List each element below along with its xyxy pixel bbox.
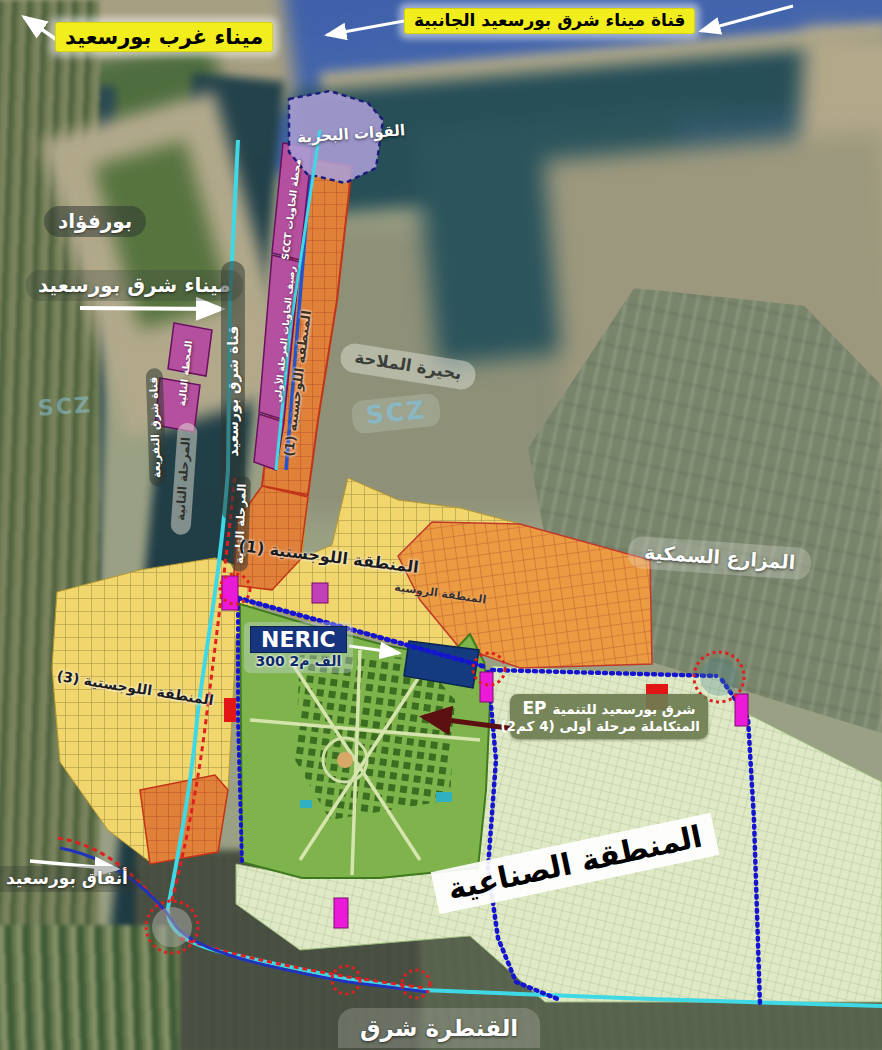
label-side-canal: قناة ميناء شرق بورسعيد الجانبية: [404, 8, 695, 34]
ep-dev-code: EP: [522, 699, 546, 719]
ep-dev-line2: المتكاملة مرحلة أولى (4 كم2): [518, 719, 700, 735]
label-phase2-east: المرحلة الثانية: [231, 475, 252, 572]
neric-area-text: 300 الف م2: [250, 653, 347, 669]
ep-dev-line1: شرق بورسعيد للتنمية: [553, 702, 696, 718]
map-canvas: ميناء غرب بورسعيد قناة ميناء شرق بورسعيد…: [0, 0, 882, 1050]
station-node-3: [334, 898, 348, 928]
station-node-4: [735, 694, 748, 726]
arrow-side-canal-b: [701, 6, 793, 31]
ep-dev-callout: EP شرق بورسعيد للتنمية المتكاملة مرحلة أ…: [510, 694, 708, 739]
label-port-east: ميناء شرق بورسعيد: [26, 270, 243, 301]
neric-title-box: NERIC: [250, 626, 347, 653]
ep-pond-a: [436, 792, 452, 802]
red-plot-2: [224, 698, 236, 722]
station-node-2: [480, 672, 493, 702]
interchange-6: [402, 970, 430, 998]
station-node-1: [222, 576, 238, 610]
arrow-port-east: [80, 308, 222, 309]
arrow-side-canal-a: [327, 21, 404, 35]
roundabout-fill-tunnel: [152, 907, 192, 947]
label-port-west: ميناء غرب بورسعيد: [55, 22, 273, 52]
ep-pond-b: [300, 800, 312, 808]
station-node-5: [312, 583, 328, 603]
neric-callout: NERIC 300 الف م2: [244, 622, 353, 673]
label-port-fuad: بورفؤاد: [44, 206, 146, 237]
label-tunnels: أنفاق بورسعيد: [0, 866, 140, 892]
ep-central-plaza: [337, 752, 353, 768]
scz-watermark-left: SCZ: [37, 392, 93, 421]
label-qantara-east: القنطرة شرق: [338, 1008, 540, 1048]
roundabout-fill-east: [700, 658, 738, 696]
arrow-port-west: [24, 17, 57, 40]
